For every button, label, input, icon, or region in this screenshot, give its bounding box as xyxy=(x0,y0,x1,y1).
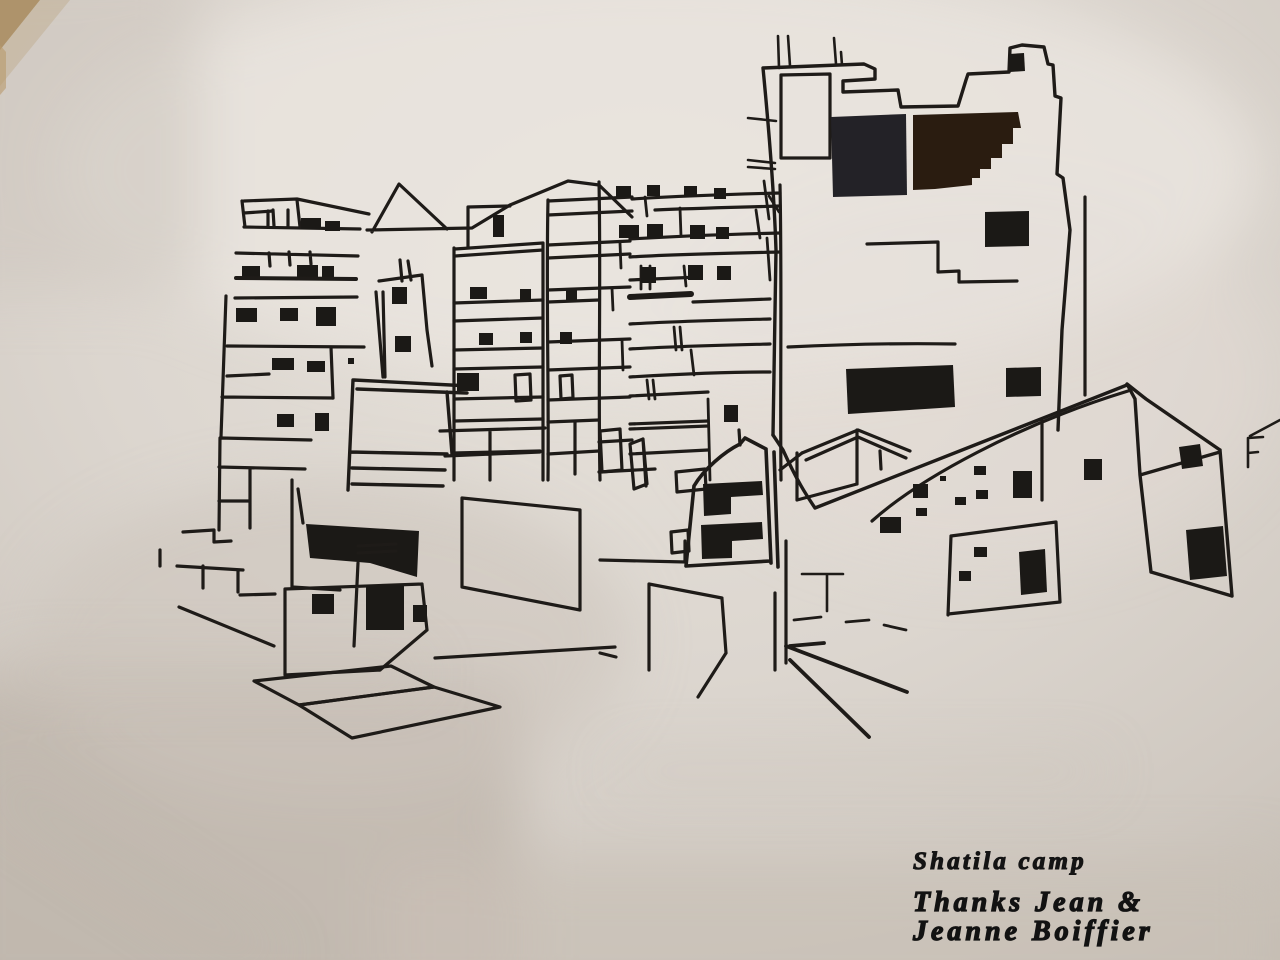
svg-text:Thanks Jean &: Thanks Jean & xyxy=(913,887,1144,918)
svg-text:Shatila camp: Shatila camp xyxy=(913,848,1087,875)
svg-text:Jeanne Boiffier: Jeanne Boiffier xyxy=(912,916,1154,947)
